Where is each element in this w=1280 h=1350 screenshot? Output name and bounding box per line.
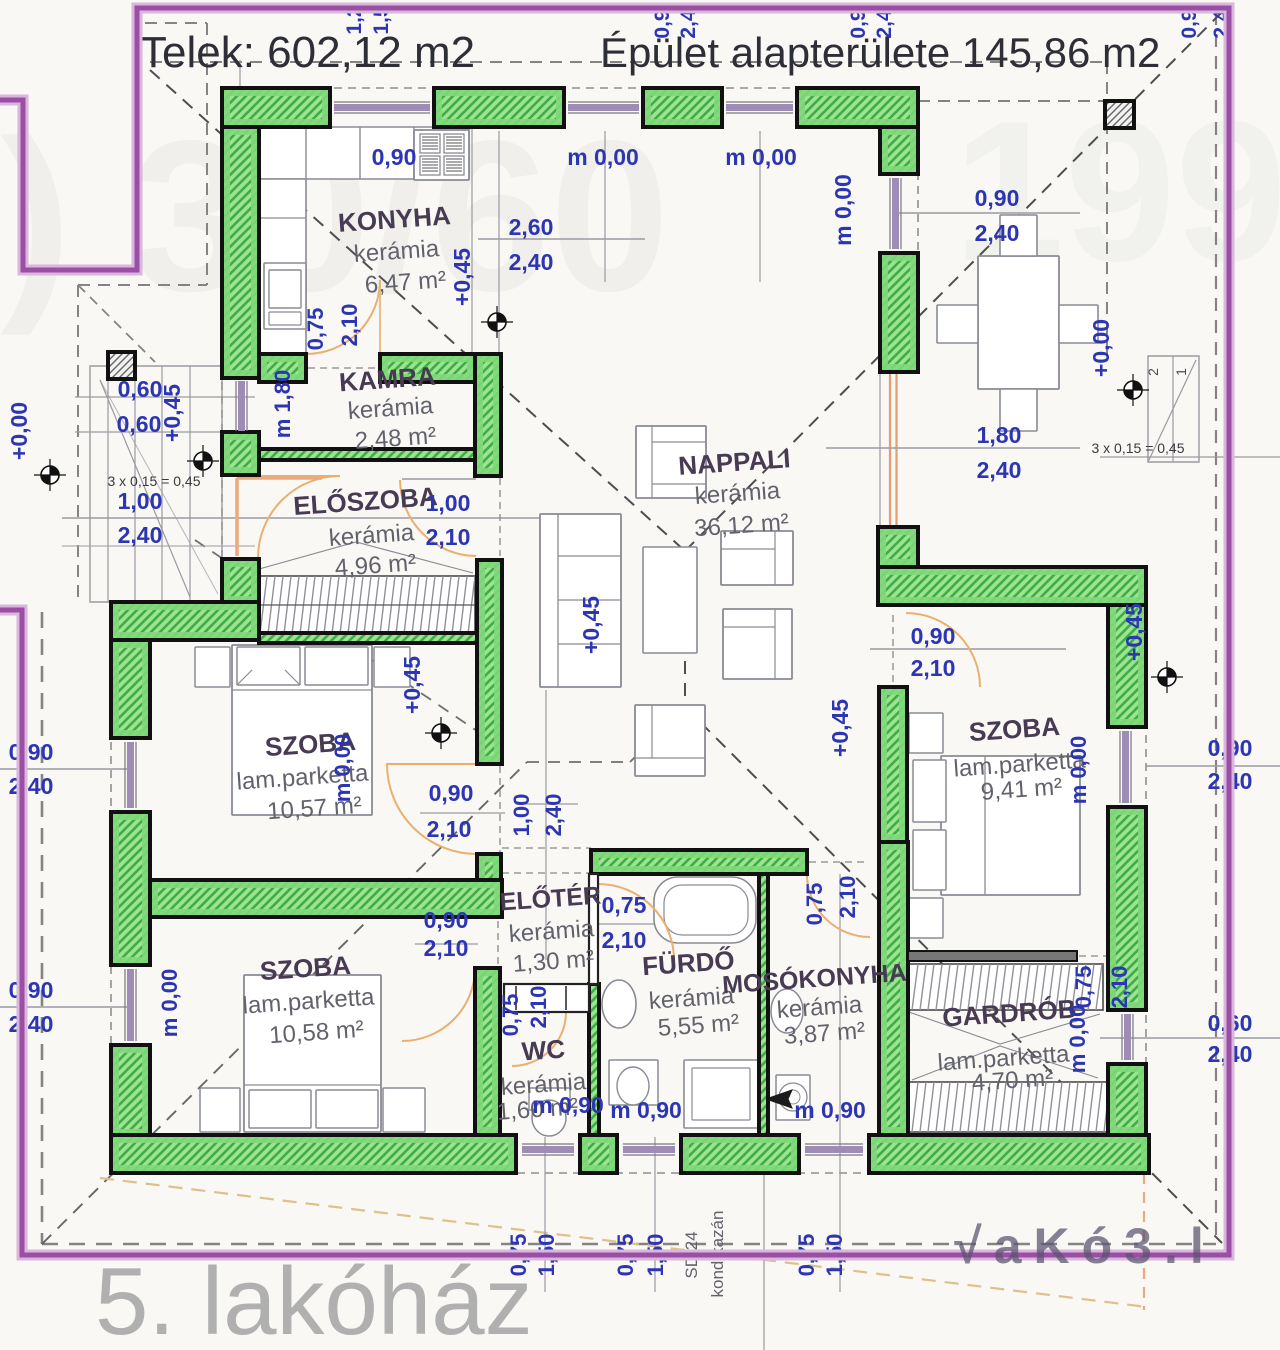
svg-text:+0,45: +0,45: [399, 656, 425, 714]
svg-text:3,87 m²: 3,87 m²: [783, 1017, 866, 1050]
svg-text:SZOBA: SZOBA: [259, 950, 352, 986]
svg-text:1,00: 1,00: [509, 794, 534, 837]
svg-text:0,90: 0,90: [911, 623, 956, 649]
svg-text:0,75: 0,75: [802, 883, 827, 926]
svg-text:1: 1: [1173, 368, 1189, 376]
svg-text:2,10: 2,10: [911, 655, 956, 681]
svg-text:2,40: 2,40: [541, 794, 566, 837]
svg-text:0,90: 0,90: [9, 739, 54, 765]
svg-text:2,10: 2,10: [427, 816, 472, 842]
svg-text:+0,45: +0,45: [159, 384, 185, 442]
svg-text:1,00: 1,00: [118, 488, 163, 514]
svg-text:0,60: 0,60: [117, 411, 162, 437]
svg-text:0,90: 0,90: [372, 144, 417, 170]
svg-text:2,10: 2,10: [1107, 966, 1132, 1009]
svg-text:2,10: 2,10: [835, 876, 860, 919]
svg-text:4,96 m²: 4,96 m²: [334, 549, 417, 582]
svg-text:SZOBA: SZOBA: [968, 711, 1061, 747]
svg-text:5. lakóház: 5. lakóház: [95, 1248, 533, 1350]
svg-text:1,00: 1,00: [426, 490, 471, 516]
svg-text:5,55 m²: 5,55 m²: [657, 1009, 740, 1042]
svg-text:m 0,00: m 0,00: [157, 969, 182, 1038]
svg-text:0,9: 0,9: [651, 9, 674, 38]
svg-text:2,10: 2,10: [337, 304, 362, 347]
svg-text:2,40: 2,40: [118, 522, 163, 548]
svg-text:m 0,90: m 0,90: [610, 1097, 682, 1123]
svg-text:m 0,90: m 0,90: [794, 1097, 866, 1123]
svg-text:m 1,80: m 1,80: [270, 370, 295, 439]
svg-text:2,10: 2,10: [602, 927, 647, 953]
svg-text:0,90: 0,90: [429, 780, 474, 806]
svg-text:+0,45: +0,45: [1121, 603, 1147, 661]
svg-text:2,48 m²: 2,48 m²: [354, 422, 437, 455]
svg-text:0,75: 0,75: [1071, 966, 1096, 1009]
svg-text:3 x 0,15 = 0,45: 3 x 0,15 = 0,45: [107, 473, 200, 489]
svg-text:0,75: 0,75: [602, 892, 647, 918]
svg-text:0,60: 0,60: [118, 376, 163, 402]
svg-text:0,9: 0,9: [847, 9, 870, 38]
svg-text:2,10: 2,10: [426, 524, 471, 550]
svg-text:3 x 0,15 = 0,45: 3 x 0,15 = 0,45: [1091, 440, 1184, 456]
svg-text:6,47 m²: 6,47 m²: [364, 266, 447, 299]
svg-text:2,40: 2,40: [509, 249, 554, 275]
svg-text:1,80: 1,80: [977, 422, 1022, 448]
svg-text:m 0,90: m 0,90: [532, 1092, 604, 1118]
svg-text:m 0,00: m 0,00: [725, 144, 797, 170]
svg-text:4,70 m²: 4,70 m²: [971, 1064, 1054, 1097]
svg-text:2,10: 2,10: [526, 986, 551, 1029]
svg-text:2,40: 2,40: [977, 457, 1022, 483]
svg-text:1,30 m²: 1,30 m²: [512, 945, 595, 978]
svg-text:0,90: 0,90: [424, 907, 469, 933]
svg-text:m 0,00: m 0,00: [567, 144, 639, 170]
svg-text:0,75: 0,75: [303, 308, 328, 351]
svg-text:2: 2: [1145, 368, 1161, 376]
svg-text:9,41 m²: 9,41 m²: [980, 773, 1063, 806]
svg-text:2,10: 2,10: [424, 935, 469, 961]
svg-text:+0,45: +0,45: [449, 248, 475, 306]
svg-text:m 0,00: m 0,00: [830, 174, 856, 246]
svg-text:2,60: 2,60: [509, 214, 554, 240]
svg-text:Telek: 602,12 m2: Telek: 602,12 m2: [140, 28, 475, 77]
svg-text:0,90: 0,90: [975, 185, 1020, 211]
svg-text:WC: WC: [521, 1034, 567, 1067]
svg-text:√aKó3.l: √aKó3.l: [954, 1218, 1216, 1274]
svg-text:m 0,00: m 0,00: [1066, 736, 1091, 805]
svg-text:m 0,00: m 0,00: [1065, 1005, 1090, 1074]
svg-text:+0,00: +0,00: [6, 402, 32, 460]
svg-text:+0,45: +0,45: [578, 596, 604, 654]
svg-text:+0,00: +0,00: [1088, 319, 1114, 377]
svg-text:0,75: 0,75: [498, 994, 523, 1037]
svg-text:2,40: 2,40: [975, 220, 1020, 246]
svg-text:+0,45: +0,45: [827, 699, 853, 757]
svg-text:0,9: 0,9: [1178, 9, 1201, 38]
svg-text:2,4: 2,4: [873, 9, 896, 39]
svg-text:2,40: 2,40: [9, 773, 54, 799]
svg-text:0,90: 0,90: [9, 977, 54, 1003]
svg-text:2,40: 2,40: [9, 1011, 54, 1037]
svg-text:m 0,00: m 0,00: [330, 734, 355, 803]
svg-text:2,4: 2,4: [677, 9, 700, 39]
